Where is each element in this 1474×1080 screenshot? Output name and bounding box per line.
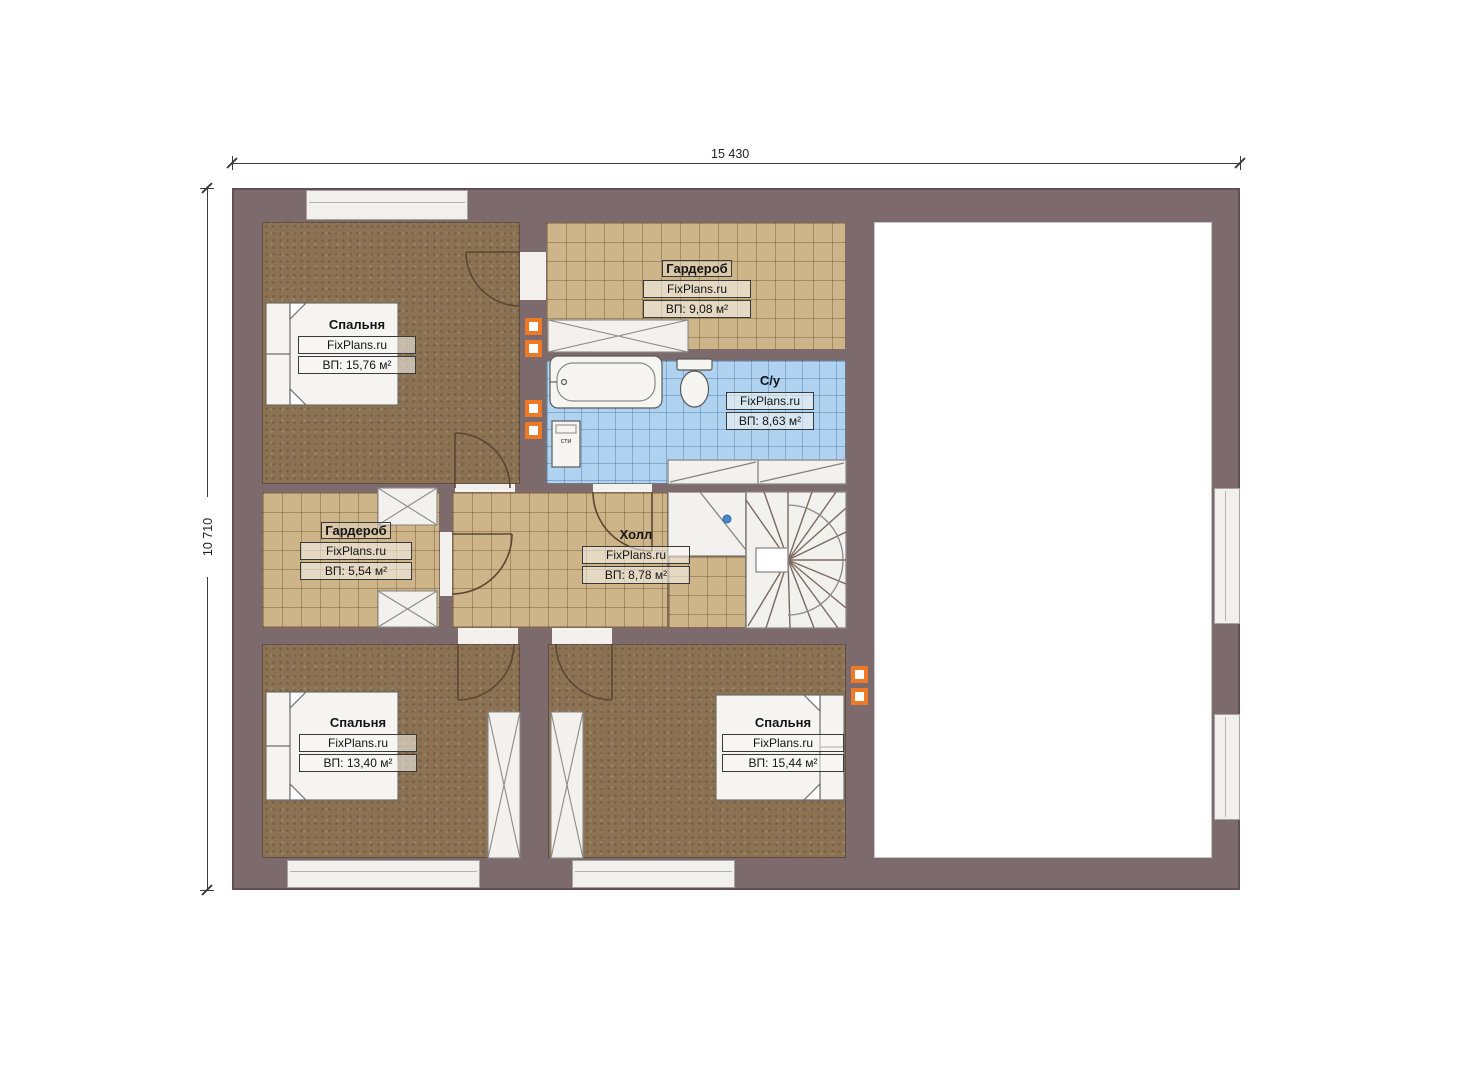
watermark-text: FixPlans.ru	[722, 734, 844, 752]
dimension-width-line	[232, 163, 1240, 164]
door-threshold	[458, 628, 518, 644]
dimension-ext	[200, 188, 214, 189]
void-area	[874, 222, 1212, 858]
room-name: Холл	[617, 527, 656, 542]
window-right-lower	[1214, 714, 1240, 820]
vent-marker	[851, 688, 868, 705]
room-name: Гардероб	[321, 522, 390, 539]
door-threshold	[455, 484, 515, 492]
door-threshold	[440, 532, 452, 596]
room-label-bathroom: С/у FixPlans.ru ВП: 8,63 м²	[726, 372, 814, 430]
vent-marker	[525, 318, 542, 335]
room-label-hall: Холл FixPlans.ru ВП: 8,78 м²	[582, 526, 690, 584]
window-bottom-right	[572, 860, 735, 888]
washer-label: сти	[552, 438, 580, 445]
window-mullion	[1225, 717, 1226, 817]
window-mullion	[309, 202, 465, 203]
room-area: ВП: 8,63 м²	[726, 412, 814, 430]
watermark-text: FixPlans.ru	[300, 542, 412, 560]
room-area: ВП: 13,40 м²	[299, 754, 417, 772]
vent-marker	[851, 666, 868, 683]
room-label-bedroom-bottom-left: Спальня FixPlans.ru ВП: 13,40 м²	[299, 714, 417, 772]
vent-marker	[525, 422, 542, 439]
watermark-text: FixPlans.ru	[298, 336, 416, 354]
room-name: Спальня	[752, 715, 814, 730]
room-area: ВП: 15,76 м²	[298, 356, 416, 374]
room-area: ВП: 15,44 м²	[722, 754, 844, 772]
room-area: ВП: 5,54 м²	[300, 562, 412, 580]
room-area: ВП: 8,78 м²	[582, 566, 690, 584]
dimension-ext	[1240, 156, 1241, 170]
dimension-height-label: 10 710	[201, 497, 215, 577]
vent-marker	[525, 400, 542, 417]
door-threshold	[520, 252, 546, 300]
watermark-text: FixPlans.ru	[643, 280, 751, 298]
room-label-bedroom-bottom-right: Спальня FixPlans.ru ВП: 15,44 м²	[722, 714, 844, 772]
watermark-text: FixPlans.ru	[726, 392, 814, 410]
room-label-wardrobe-top: Гардероб FixPlans.ru ВП: 9,08 м²	[643, 260, 751, 318]
floor-plan-canvas: 15 430 10 710	[0, 0, 1474, 1080]
window-bottom-left	[287, 860, 480, 888]
watermark-text: FixPlans.ru	[299, 734, 417, 752]
room-name: Спальня	[327, 715, 389, 730]
window-right-upper	[1214, 488, 1240, 624]
room-label-bedroom-top-left: Спальня FixPlans.ru ВП: 15,76 м²	[298, 316, 416, 374]
dimension-ext	[200, 890, 214, 891]
dimension-ext	[232, 156, 233, 170]
room-area: ВП: 9,08 м²	[643, 300, 751, 318]
window-top	[306, 190, 468, 220]
window-mullion	[290, 871, 477, 872]
door-threshold	[593, 484, 652, 492]
dimension-width-label: 15 430	[706, 147, 754, 161]
room-name: С/у	[757, 373, 783, 388]
room-label-wardrobe-middle: Гардероб FixPlans.ru ВП: 5,54 м²	[300, 522, 412, 580]
door-threshold	[552, 628, 612, 644]
watermark-text: FixPlans.ru	[582, 546, 690, 564]
room-name: Спальня	[326, 317, 388, 332]
window-mullion	[575, 871, 732, 872]
vent-marker	[525, 340, 542, 357]
window-mullion	[1225, 491, 1226, 621]
room-name: Гардероб	[662, 260, 731, 277]
